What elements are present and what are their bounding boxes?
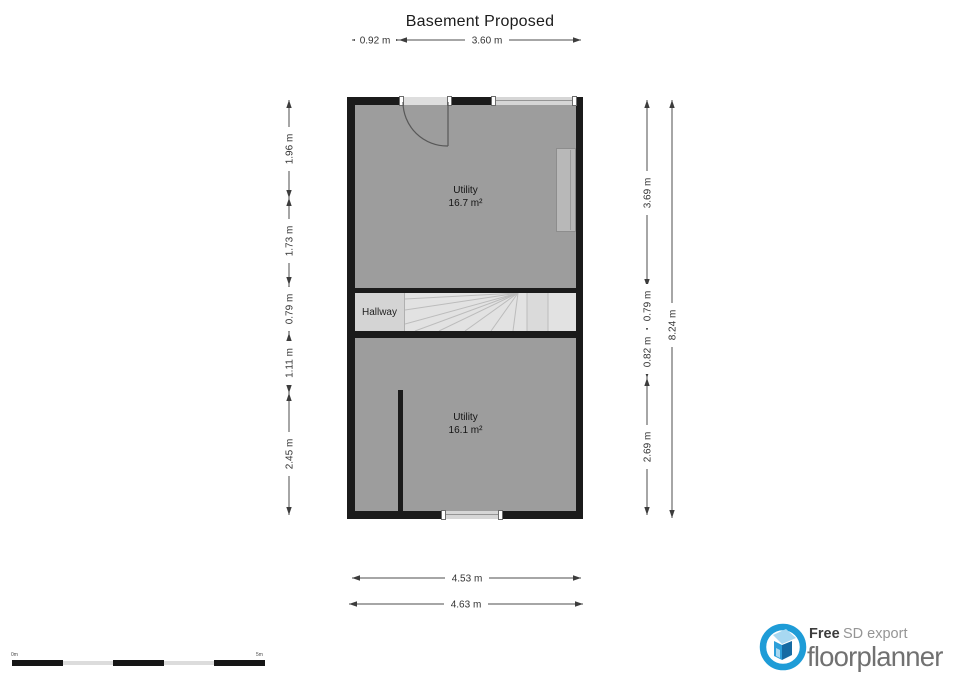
wall-cap: [498, 510, 503, 520]
floorplanner-logo: Free SD export floorplanner: [752, 618, 960, 679]
page-title: Basement Proposed: [0, 13, 960, 31]
room-label-utility-top: Utility 16.7 m²: [355, 184, 576, 210]
stairs-landing-step: [527, 293, 548, 331]
dimension-label-right-2: 0.79 m: [641, 284, 654, 328]
house-icon: [773, 629, 796, 660]
dimension-label-top-1: 0.92 m: [355, 34, 396, 47]
window-top: [494, 97, 574, 105]
scale-start-label: 0m: [11, 652, 18, 658]
dimension-label-bottom-2: 4.63 m: [444, 598, 488, 611]
window-glass-line: [444, 514, 500, 515]
svg-text:0.79 m: 0.79 m: [285, 294, 296, 325]
scale-bar-segment: [113, 660, 164, 666]
svg-text:3.69 m: 3.69 m: [643, 178, 654, 209]
wall-cap: [399, 96, 404, 106]
room-name: Utility: [355, 411, 576, 424]
logo-sd-export-text: SD export: [843, 626, 907, 642]
room-area: 16.7 m²: [355, 197, 576, 210]
window-bottom: [444, 511, 500, 519]
scale-end-label: 5m: [256, 652, 263, 658]
dimension-label-right-3: 0.82 m: [641, 330, 654, 374]
floorplan-export-page: Basement Proposed Hallway: [0, 0, 960, 679]
logo-free-text: Free: [809, 626, 840, 642]
svg-text:1.11 m: 1.11 m: [285, 348, 296, 378]
dimension-label-left-4: 1.11 m: [283, 341, 296, 385]
dimension-label-bottom-1: 4.53 m: [445, 572, 489, 585]
dimension-label-right-total: 8.24 m: [666, 303, 679, 347]
svg-text:1.96 m: 1.96 m: [285, 134, 296, 165]
scale-bar-segment: [12, 660, 63, 666]
partition-wall: [398, 390, 403, 511]
dimension-label-left-3: 0.79 m: [283, 287, 296, 331]
wall-cap: [441, 510, 446, 520]
wall-cap: [447, 96, 452, 106]
svg-text:0.92 m: 0.92 m: [360, 36, 391, 47]
svg-text:4.63 m: 4.63 m: [451, 600, 482, 611]
logo-brand-text: floorplanner: [807, 641, 943, 672]
room-name: Utility: [355, 184, 576, 197]
dimension-label-left-5: 2.45 m: [283, 432, 296, 476]
wall-cap: [491, 96, 496, 106]
svg-text:0.79 m: 0.79 m: [643, 291, 654, 322]
dimension-label-right-4: 2.69 m: [641, 425, 654, 469]
dimension-label-left-2: 1.73 m: [283, 219, 296, 263]
svg-text:1.73 m: 1.73 m: [285, 226, 296, 257]
hallway-label-box: Hallway: [355, 293, 405, 331]
dimension-label-right-1: 3.69 m: [641, 171, 654, 215]
hallway-label: Hallway: [362, 307, 397, 318]
svg-text:2.45 m: 2.45 m: [285, 439, 296, 470]
dimension-label-top-2: 3.60 m: [465, 34, 509, 47]
scale-bar-segment: [214, 660, 265, 666]
room-label-utility-bottom: Utility 16.1 m²: [355, 411, 576, 437]
window-glass-line: [494, 100, 574, 101]
wall-cap: [572, 96, 577, 106]
dimension-label-left-1: 1.96 m: [283, 127, 296, 171]
stairs: [405, 293, 576, 331]
svg-text:8.24 m: 8.24 m: [668, 310, 679, 341]
svg-text:2.69 m: 2.69 m: [643, 432, 654, 463]
svg-text:3.60 m: 3.60 m: [472, 36, 503, 47]
door-opening: [402, 97, 450, 105]
room-area: 16.1 m²: [355, 424, 576, 437]
svg-text:4.53 m: 4.53 m: [452, 574, 483, 585]
svg-text:0.82 m: 0.82 m: [643, 337, 654, 368]
